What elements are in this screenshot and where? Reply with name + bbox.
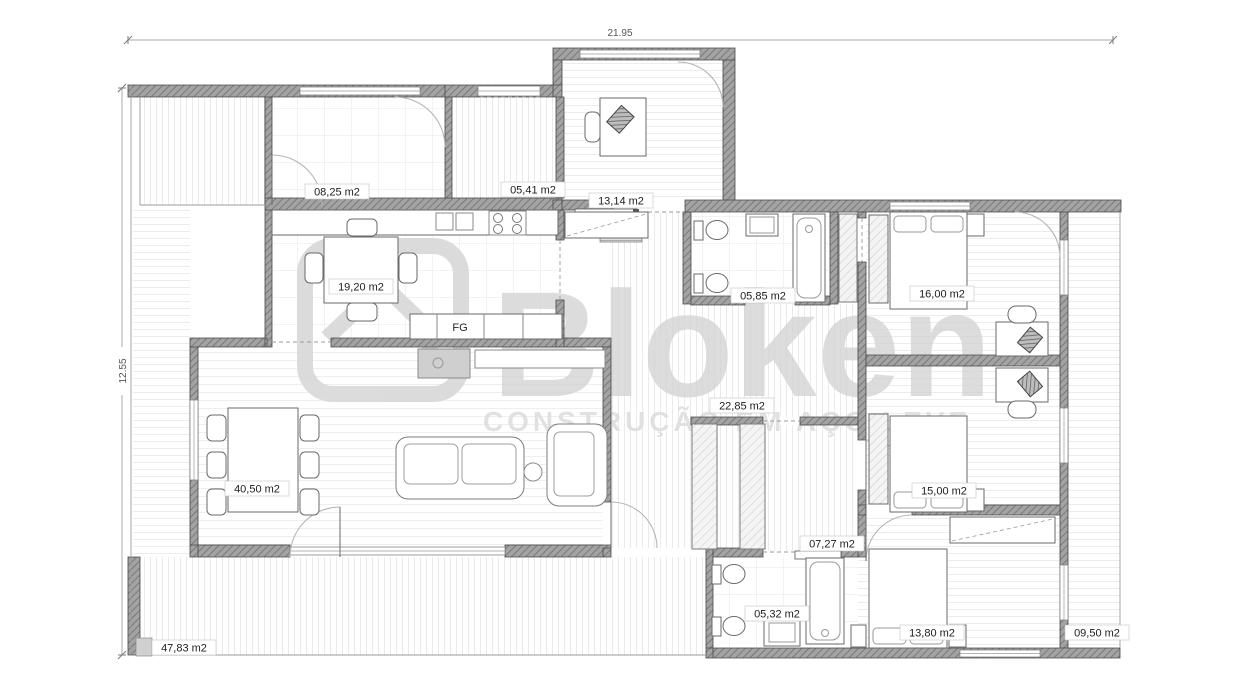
wardrobe [869, 215, 888, 303]
dining-chair [207, 415, 226, 441]
room-label-bedroom-middle-right: 15,00 m2 [912, 483, 976, 498]
toilet-bowl [723, 565, 745, 584]
room-label-office: 13,14 m2 [589, 193, 653, 208]
kitchen-island-fg-counter [410, 314, 562, 339]
wardrobe [692, 424, 717, 549]
label-text: 40,50 m2 [234, 484, 280, 496]
dimension-top: 21.95 [124, 25, 1117, 44]
label-text: 47,83 m2 [161, 643, 207, 655]
dining-table [228, 408, 298, 512]
wardrobe [869, 414, 888, 504]
dining-chair [207, 489, 226, 515]
fg-label: FG [452, 322, 467, 334]
label-text: 09,50 m2 [1074, 628, 1120, 640]
label-text: 15,00 m2 [921, 486, 967, 498]
sofa-main-cushion [404, 444, 458, 484]
sofa-main-cushion [462, 444, 516, 484]
toilet-bowl [706, 221, 728, 240]
desk-chair [1008, 306, 1036, 323]
fireplace [418, 349, 470, 378]
room-label-bathroom-top: 05,85 m2 [731, 288, 795, 303]
room-label-bedroom-top-right: 16,00 m2 [910, 286, 974, 301]
dim-height-text: 12.55 [118, 358, 129, 383]
office-chair [585, 112, 600, 142]
kitchen-chair-north [347, 219, 377, 236]
label-text: 13,80 m2 [909, 628, 955, 640]
room-label-deck-right: 09,50 m2 [1065, 625, 1129, 640]
sink-basin [769, 623, 795, 642]
bathtub-basin [810, 562, 840, 640]
kitchen-chair-west [305, 253, 323, 283]
label-text: 19,20 m2 [338, 282, 384, 294]
room-label-bedroom-bottom-right: 13,80 m2 [900, 625, 964, 640]
label-text: 07,27 m2 [809, 539, 855, 551]
room-label-living-room: 40,50 m2 [225, 481, 289, 496]
dining-chair [300, 489, 319, 515]
room-label-entry-hall: 05,41 m2 [501, 182, 565, 197]
pillow [894, 216, 926, 232]
side-table [524, 463, 542, 481]
dining-chair [207, 452, 226, 478]
pillow [931, 216, 963, 232]
dining-chair [300, 452, 319, 478]
nightstand [967, 214, 984, 236]
desk-chair [1008, 401, 1036, 418]
kitchen-chair-south [347, 303, 377, 321]
kitchen-sink-bowl-left [436, 213, 453, 230]
dim-width-text: 21.95 [607, 28, 632, 39]
label-text: 08,25 m2 [314, 187, 360, 199]
tv-sideboard [475, 350, 605, 368]
toilet-tank [712, 565, 721, 584]
kitchen-chair-east [399, 253, 417, 283]
room-label-bathroom-bottom: 05,32 m2 [745, 606, 809, 621]
armchair-cushion [554, 432, 594, 496]
label-text: 05,32 m2 [754, 609, 800, 621]
label-text: 05,85 m2 [740, 291, 786, 303]
wall-end-post [136, 638, 152, 656]
dimension-left: 12.55 [115, 84, 129, 659]
wardrobe [740, 424, 765, 549]
bidet-bowl [706, 274, 728, 293]
room-label-hall-wardrobes: 07,27 m2 [800, 536, 864, 551]
floor-plan-canvas: Bloken CONSTRUÇÃO EM AÇO LEVE [0, 0, 1244, 683]
room-label-deck-bottom: 47,83 m2 [136, 638, 216, 656]
label-text: 22,85 m2 [719, 401, 765, 413]
room-label-corridor: 22,85 m2 [710, 398, 774, 413]
room-label-kitchen-dining: 19,20 m2 [329, 279, 393, 294]
label-text: 05,41 m2 [510, 185, 556, 197]
sink-basin [750, 217, 774, 233]
office-wardrobe [565, 212, 648, 238]
bathtub-drain [806, 226, 813, 233]
label-text: 13,14 m2 [598, 196, 644, 208]
bidet-tank [712, 617, 721, 636]
wardrobe [839, 214, 857, 302]
toilet-tank [694, 221, 703, 240]
bidet-tank [694, 274, 703, 293]
nightstand [851, 625, 866, 647]
bathtub-drain [822, 630, 829, 637]
bidet-bowl [723, 617, 745, 636]
dining-chair [300, 415, 319, 441]
kitchen-sink-bowl-right [456, 213, 473, 230]
label-text: 16,00 m2 [919, 289, 965, 301]
room-label-bedroom-top-left: 08,25 m2 [305, 184, 369, 199]
